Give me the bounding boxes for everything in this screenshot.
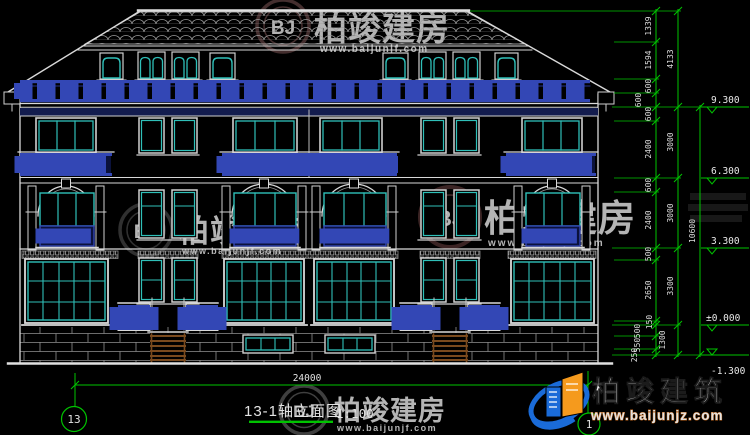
entry-stairs-left xyxy=(148,332,188,362)
window-3f-pair xyxy=(421,118,479,153)
attic-windows xyxy=(97,52,521,80)
entry-railing xyxy=(186,303,218,331)
eave-lines xyxy=(78,46,532,50)
window-1f-grid xyxy=(22,259,111,325)
watermark-url: www.baijunjf.com xyxy=(336,423,437,433)
dim-label: 600 xyxy=(644,107,653,122)
dim-label: 3000 xyxy=(666,132,675,151)
basement-vent xyxy=(325,335,375,353)
dim-label-total-height: 10600 xyxy=(688,219,697,243)
faint-note-block xyxy=(688,193,748,222)
dentil-cornice xyxy=(22,251,596,259)
dim-label: 2400 xyxy=(644,210,653,229)
window-1f-pair xyxy=(418,258,481,304)
dim-label: 2400 xyxy=(644,139,653,158)
entry-stairs-right xyxy=(430,332,470,362)
attic-window-single xyxy=(210,53,235,79)
dim-label: 4133 xyxy=(666,49,675,68)
window-3f-bay xyxy=(522,118,582,153)
third-floor xyxy=(18,118,598,183)
attic-window-single xyxy=(100,53,123,79)
window-3f-pair xyxy=(139,118,197,153)
dim-label: 1339 xyxy=(644,16,653,35)
window-3f-bay xyxy=(320,118,382,153)
floor-band-6300 xyxy=(20,178,598,184)
basement-vent xyxy=(243,335,293,353)
title-block: 13-1轴立面图 1:100 xyxy=(244,403,374,422)
gutter-right xyxy=(598,92,614,104)
dim-label: 600 xyxy=(644,79,653,94)
logo-tower-orange xyxy=(562,372,583,417)
cad-elevation-sheet: BJ 柏竣建房 www.baijunjf.com BJ 柏竣建房 www.bai… xyxy=(0,0,750,435)
drawing-scale: 1:100 xyxy=(336,406,374,421)
attic-window-single xyxy=(383,53,408,79)
logo-url-text: www.baijunjz.com xyxy=(590,408,724,423)
level-label: ±0.000 xyxy=(706,313,741,324)
window-1f-pair xyxy=(137,258,199,304)
window-1f-grid xyxy=(221,259,307,325)
entry-railing xyxy=(468,303,500,331)
dimension-chain-lines xyxy=(656,9,700,357)
first-floor xyxy=(22,258,597,325)
level-label: 3.300 xyxy=(711,236,740,247)
axis-label-left: 13 xyxy=(67,413,80,426)
arch-bay xyxy=(26,179,106,250)
dim-label: 600 xyxy=(644,178,653,193)
dim-label: 1594 xyxy=(644,50,653,69)
dim-label: 500 xyxy=(644,247,653,262)
dim-label-width: 24000 xyxy=(293,373,322,384)
attic-window-single xyxy=(495,53,518,79)
arch-bay xyxy=(512,179,592,250)
dim-label: 500 xyxy=(633,324,642,339)
window-1f-grid xyxy=(508,259,597,325)
terrace-railing xyxy=(20,80,598,104)
entry-railing xyxy=(400,303,432,331)
balcony-railing xyxy=(220,152,399,176)
roof-slope-right xyxy=(467,11,610,92)
dim-label: 250 xyxy=(630,348,639,363)
dim-label: 600 xyxy=(634,93,643,108)
window-3f-bay xyxy=(233,118,297,153)
roof-tiles xyxy=(85,12,525,44)
window-1f-grid xyxy=(311,259,397,325)
attic-window-double xyxy=(172,52,199,79)
entry-railing xyxy=(118,303,150,331)
attic-window-double xyxy=(453,52,480,79)
attic-window-double xyxy=(138,52,165,79)
building-elevation xyxy=(4,11,614,364)
dim-label: 2650 xyxy=(644,280,653,299)
logo-brand-text: 柏竣建筑 xyxy=(592,375,728,407)
balcony-railing xyxy=(18,152,114,176)
dim-label: 1300 xyxy=(658,330,667,349)
balcony-railing xyxy=(504,152,598,176)
brand-logo: 柏竣建筑 www.baijunjz.com xyxy=(524,372,728,433)
arch-bay xyxy=(310,179,398,250)
dim-label: 3300 xyxy=(666,276,675,295)
plinth-masonry xyxy=(20,327,598,362)
dim-label: 150 xyxy=(645,315,654,330)
window-3f-bay xyxy=(36,118,96,153)
dim-label: 3000 xyxy=(666,203,675,222)
drawing-title: 13-1轴立面图 xyxy=(244,403,342,420)
level-label: 6.300 xyxy=(711,166,740,177)
level-label: 9.300 xyxy=(711,95,740,106)
attic-window-double xyxy=(419,52,446,79)
